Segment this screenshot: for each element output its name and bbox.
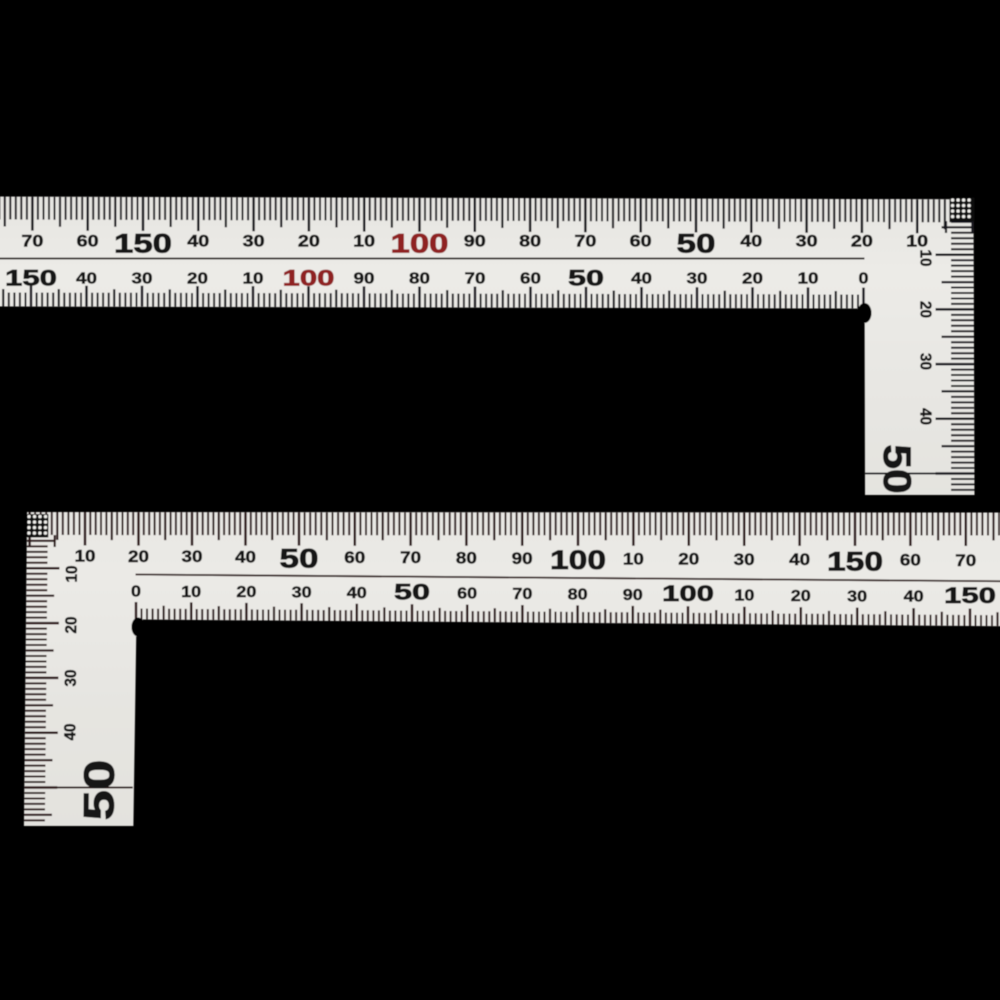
- svg-text:30: 30: [63, 669, 80, 686]
- svg-text:70: 70: [400, 549, 421, 567]
- svg-text:100: 100: [550, 545, 606, 575]
- svg-text:20: 20: [128, 548, 149, 566]
- svg-text:50: 50: [394, 579, 430, 604]
- svg-text:20: 20: [851, 232, 873, 250]
- svg-text:90: 90: [464, 232, 486, 250]
- svg-text:150: 150: [114, 229, 172, 259]
- svg-text:90: 90: [354, 271, 375, 288]
- svg-text:30: 30: [734, 551, 755, 569]
- svg-text:10: 10: [623, 550, 644, 568]
- svg-text:10: 10: [243, 271, 264, 288]
- svg-text:100: 100: [391, 229, 449, 259]
- svg-text:30: 30: [132, 271, 153, 288]
- svg-text:10: 10: [353, 232, 375, 250]
- svg-text:20: 20: [917, 301, 934, 318]
- svg-text:40: 40: [917, 408, 934, 425]
- svg-text:40: 40: [789, 551, 810, 569]
- svg-text:20: 20: [63, 616, 80, 633]
- svg-text:40: 40: [62, 723, 79, 740]
- svg-text:0: 0: [131, 584, 141, 601]
- svg-text:30: 30: [796, 232, 818, 250]
- svg-text:100: 100: [662, 581, 714, 606]
- svg-text:80: 80: [519, 232, 541, 250]
- svg-text:90: 90: [512, 550, 533, 568]
- svg-text:80: 80: [456, 550, 477, 568]
- svg-text:20: 20: [298, 232, 320, 250]
- svg-text:150: 150: [5, 266, 57, 291]
- svg-text:20: 20: [742, 271, 763, 288]
- svg-text:50: 50: [677, 229, 716, 259]
- svg-text:30: 30: [243, 232, 265, 250]
- svg-text:60: 60: [630, 232, 652, 250]
- svg-text:20: 20: [791, 588, 811, 605]
- svg-text:80: 80: [409, 271, 430, 288]
- svg-text:60: 60: [344, 549, 365, 567]
- svg-text:40: 40: [187, 232, 209, 250]
- svg-text:60: 60: [457, 586, 477, 603]
- svg-text:150: 150: [944, 583, 996, 608]
- svg-text:70: 70: [574, 232, 596, 250]
- svg-text:10: 10: [798, 271, 819, 288]
- svg-text:20: 20: [187, 271, 208, 288]
- svg-text:70: 70: [512, 586, 532, 603]
- svg-text:60: 60: [900, 552, 921, 570]
- svg-text:150: 150: [827, 547, 883, 577]
- svg-text:30: 30: [687, 271, 708, 288]
- svg-text:20: 20: [236, 584, 256, 601]
- svg-text:70: 70: [465, 271, 486, 288]
- svg-text:100: 100: [283, 266, 335, 291]
- svg-text:0: 0: [859, 271, 869, 288]
- svg-text:40: 40: [904, 589, 924, 606]
- svg-text:10: 10: [64, 565, 81, 582]
- svg-text:40: 40: [740, 232, 762, 250]
- svg-text:40: 40: [631, 271, 652, 288]
- svg-text:50: 50: [875, 444, 918, 494]
- svg-text:70: 70: [955, 552, 976, 570]
- svg-text:40: 40: [347, 585, 367, 602]
- svg-text:80: 80: [568, 586, 588, 603]
- svg-text:10: 10: [75, 548, 96, 566]
- svg-text:50: 50: [280, 544, 319, 574]
- svg-text:40: 40: [76, 271, 97, 288]
- svg-text:60: 60: [520, 271, 541, 288]
- svg-text:10: 10: [181, 584, 201, 601]
- svg-text:90: 90: [623, 587, 643, 604]
- svg-text:50: 50: [75, 760, 124, 821]
- svg-text:30: 30: [292, 585, 312, 602]
- svg-text:30: 30: [847, 588, 867, 605]
- svg-text:40: 40: [235, 548, 256, 566]
- svg-text:30: 30: [917, 353, 934, 370]
- svg-text:10: 10: [917, 250, 934, 267]
- svg-text:60: 60: [77, 232, 99, 250]
- svg-text:10: 10: [906, 232, 928, 250]
- svg-text:50: 50: [568, 266, 604, 291]
- svg-text:30: 30: [182, 548, 203, 566]
- svg-text:70: 70: [21, 232, 43, 250]
- svg-text:20: 20: [678, 551, 699, 569]
- svg-text:10: 10: [734, 588, 754, 605]
